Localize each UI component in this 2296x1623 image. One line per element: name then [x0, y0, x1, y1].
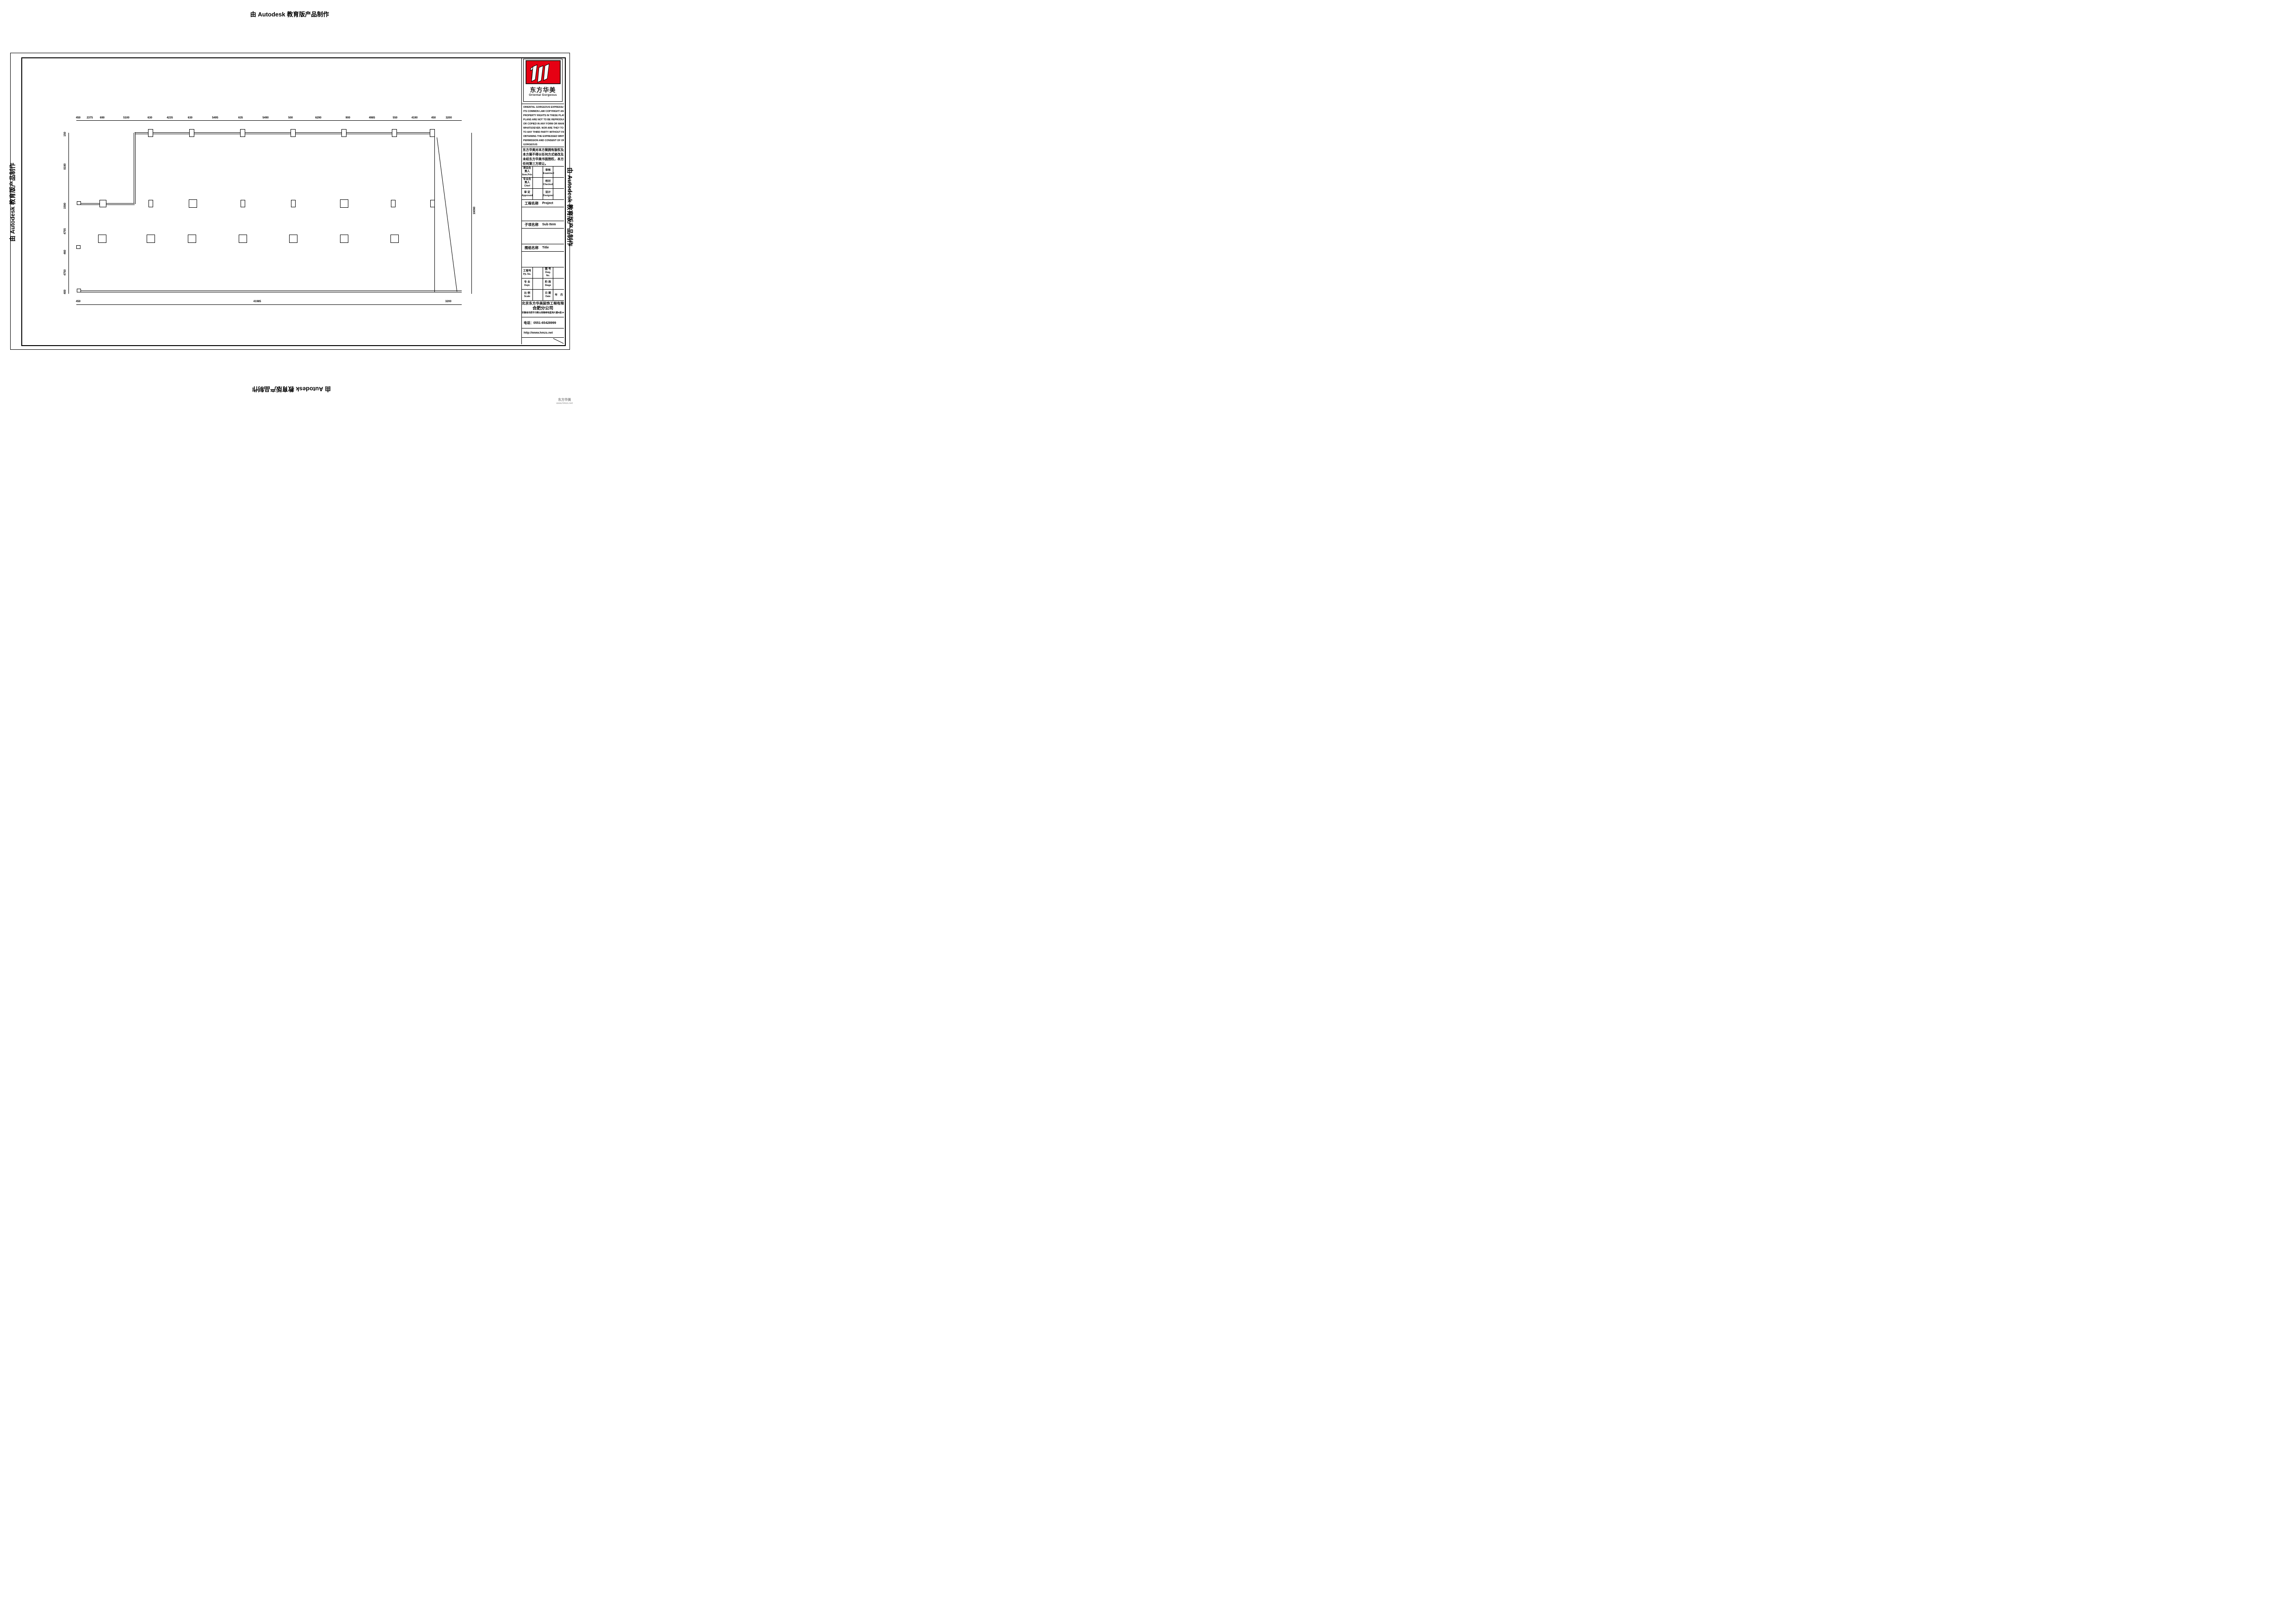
copyright-line: ORIENTAL GORGEOUS EXPRESSLY RESERVES [523, 105, 563, 110]
column-marker [240, 129, 245, 137]
sub-item-row: 子项名称 Sub Item [522, 221, 564, 229]
cell-value [533, 267, 543, 279]
copyright-chinese: 东方华美对本方案拥有版权及所有权。 本方案不得以任何方式修改及复制。 未经东方华… [522, 147, 564, 167]
dim-label: 2375 [87, 117, 93, 119]
fields-table: 工程号 Pjt. No. 图 号 Dwg. No. 专 业 Dept. 阶 段 … [522, 267, 564, 301]
cell-value [553, 178, 564, 189]
cell-value [533, 279, 543, 290]
drawing-title-row: 图纸名称 Title [522, 244, 564, 252]
dim-label: 150 [64, 132, 67, 136]
label: 项目负责人 [522, 167, 532, 173]
dim-label: 4985 [369, 117, 375, 119]
company-name: 北京东方华美装饰工程有限公司 [522, 301, 564, 306]
label: Approved [522, 194, 532, 198]
wall-top [135, 132, 435, 134]
copyright-line: WHATSOEVER. NOR ARE THEY TO BE ASSIGNED [523, 126, 563, 130]
label: 设计 [543, 191, 553, 194]
dim-label: 6290 [315, 117, 321, 119]
label: 审 定 [522, 191, 532, 194]
label: 比 例 [522, 292, 532, 295]
cell-value [553, 189, 564, 200]
dim-label: 400 [64, 290, 67, 294]
dim-label: 4235 [167, 117, 173, 119]
label: 专业负责人 [522, 178, 532, 185]
company-address: 安徽省合肥市马鞍山南路绿地蓝海大厦B座19楼 [522, 311, 564, 314]
project-name-row: 工程名称 Project [522, 200, 564, 207]
label: Scale [522, 295, 532, 298]
watermark-top: 由 Autodesk 教育版产品制作 [250, 10, 329, 19]
column-marker [291, 200, 296, 207]
logo-name-cn: 东方华美 [524, 87, 562, 93]
column-marker [390, 235, 399, 243]
dim-label: 3200 [445, 300, 451, 303]
cell-date: 日 期 Date [543, 290, 553, 301]
logo-section: 东方华美 Oriental Gorgeous [522, 57, 564, 104]
dim-line-left [68, 133, 69, 294]
label: 校对 [543, 180, 553, 183]
label: Pjt. No. [522, 273, 532, 276]
copyright-english: ORIENTAL GORGEOUS EXPRESSLY RESERVES ITS… [522, 104, 564, 147]
dim-label: 450 [76, 300, 80, 303]
label: 图纸名称 [525, 245, 538, 250]
column-marker [241, 200, 245, 207]
label: Examined [543, 172, 553, 175]
cell-value [553, 267, 564, 279]
column-marker [189, 129, 194, 137]
copyright-line: PLANS ARE NOT TO BE REPRODUCED CHANGED [523, 118, 563, 122]
cell-value [533, 290, 543, 301]
corner-wedge [522, 338, 564, 344]
dim-label: 450 [76, 117, 80, 119]
company-website: http://www.hmzs.net [522, 328, 564, 338]
dim-label: 900 [346, 117, 350, 119]
column-marker [239, 235, 247, 243]
label: Item.Prin [522, 173, 532, 177]
label: 日 期 [543, 292, 553, 295]
label: 审核 [543, 169, 553, 172]
cell-scale: 比 例 Scale [522, 290, 533, 301]
dim-label: 630 [148, 117, 152, 119]
column-marker [340, 235, 348, 243]
copyright-line: TO ANY THIRD PARTY WITHOUT FIRST [523, 130, 563, 135]
label: Checked [543, 183, 553, 186]
title-block: 东方华美 Oriental Gorgeous ORIENTAL GORGEOUS… [521, 57, 564, 344]
column-marker [188, 235, 196, 243]
label: 年 月 [553, 294, 564, 297]
company-section: 北京东方华美装饰工程有限公司 合肥分公司 安徽省合肥市马鞍山南路绿地蓝海大厦B座… [522, 301, 564, 317]
dim-label: 460 [64, 250, 67, 254]
cell-chief: 专业负责人 Chief [522, 178, 533, 189]
dim-label: 630 [188, 117, 192, 119]
company-branch: 合肥分公司 [522, 306, 564, 311]
corner-brand-stamp: 东方华美 www.hmzs.net [557, 398, 573, 405]
cell-pjt-no: 工程号 Pjt. No. [522, 267, 533, 279]
watermark-bottom: 由 Autodesk 教育版产品制作 [252, 385, 331, 394]
wall-bottom [77, 291, 462, 292]
label: Stage [543, 284, 553, 287]
label: 电话：0551-65428999 [524, 321, 556, 325]
wall-middle-hook [77, 201, 81, 205]
wedge-diagonal [553, 338, 564, 344]
column-marker [291, 129, 296, 137]
label: 专 业 [522, 281, 532, 284]
column-marker [392, 129, 397, 137]
copyright-line: PERMISSION AND CONSENT OF ORIENTAL [523, 139, 563, 143]
drawing-sheet: 由 Autodesk 教育版产品制作 由 Autodesk 教育版产品制作 由 … [0, 0, 574, 406]
cell-dwg-no: 图 号 Dwg. No. [543, 267, 553, 279]
label: Sub Item [542, 223, 556, 226]
cell-value [553, 279, 564, 290]
cell-stage: 阶 段 Stage [543, 279, 553, 290]
label: Date [543, 295, 553, 298]
dim-label: 690 [100, 117, 105, 119]
cell-examined: 审核 Examined [543, 167, 553, 178]
corner-brand-name: 东方华美 [557, 398, 573, 402]
cell-dept: 专 业 Dept. [522, 279, 533, 290]
dim-label-total-height: 19090 [473, 207, 476, 215]
label: Title [542, 246, 549, 249]
wall-right [434, 133, 435, 292]
dim-line-right [471, 133, 472, 294]
dim-label: 8190 [64, 163, 67, 169]
dim-line-top [76, 120, 462, 121]
copyright-line: 本方案不得以任何方式修改及复制。 [523, 153, 564, 157]
column-marker [341, 129, 347, 137]
column-marker [391, 200, 396, 207]
wall-left-return [134, 133, 136, 204]
dim-label: 41985 [254, 300, 261, 303]
dim-label: 4190 [411, 117, 417, 119]
dim-label: 635 [238, 117, 243, 119]
label: 图 号 [543, 268, 553, 271]
corner-brand-site: www.hmzs.net [557, 402, 573, 405]
column-marker [340, 199, 348, 208]
dim-label: 3200 [446, 117, 452, 119]
column-marker [147, 235, 155, 243]
copyright-line: ITS COMMON LAW COPYRIGHT AND OTHER [523, 110, 563, 114]
copyright-line: OR COPIED IN ANY FORM OR MANNER [523, 122, 563, 126]
copyright-line: GORGEOUS [523, 143, 563, 147]
copyright-line: 东方华美对本方案拥有版权及所有权。 [523, 148, 564, 153]
oriental-gorgeous-logo-icon [525, 60, 561, 84]
column-marker [430, 129, 435, 137]
column-marker [289, 235, 297, 243]
copyright-line: 未经东方华美书面授权，本方案不得向 [523, 157, 564, 162]
dim-label: 500 [288, 117, 293, 119]
dim-label: 1590 [64, 203, 67, 209]
cell-date-value: 年 月 [553, 290, 564, 301]
column-marker [189, 199, 197, 208]
label: Dept. [522, 284, 532, 287]
label: Designed [543, 194, 553, 198]
cell-value [533, 167, 543, 178]
column-marker [148, 129, 153, 137]
copyright-line: OBTAINING THE EXPRESSED WRITTEN [523, 135, 563, 139]
dim-label: 5100 [123, 117, 129, 119]
label: 阶 段 [543, 281, 553, 284]
dim-label: 4750 [64, 269, 67, 275]
dim-line-bottom [76, 304, 462, 305]
label: http://www.hmzs.net [524, 331, 553, 335]
wall-bottom-hook [77, 289, 81, 292]
column-marker [149, 200, 153, 207]
dim-label: 550 [393, 117, 397, 119]
column-marker [98, 235, 106, 243]
label: 子项名称 [525, 222, 538, 227]
drawing-title-value [522, 252, 564, 267]
cell-value [533, 189, 543, 200]
label: Dwg. No. [543, 271, 553, 278]
label: Project [542, 202, 553, 205]
dim-label: 450 [431, 117, 436, 119]
copyright-line: PROPERTY RIGHTS IN THESE PLANS. THESE [523, 114, 563, 118]
cell-checked: 校对 Checked [543, 178, 553, 189]
company-phone: 电话：0551-65428999 [522, 317, 564, 328]
project-name-value [522, 207, 564, 221]
column-marker [99, 200, 106, 207]
cell-value [553, 167, 564, 178]
cell-value [533, 178, 543, 189]
label: Chief [522, 185, 532, 188]
column-marker-small [76, 245, 80, 249]
cell-item-prin: 项目负责人 Item.Prin [522, 167, 533, 178]
sub-item-value [522, 229, 564, 244]
dim-label: 5495 [212, 117, 218, 119]
column-marker [430, 200, 435, 207]
cell-designed: 设计 Designed [543, 189, 553, 200]
dim-label: 4755 [64, 228, 67, 234]
logo-name-en: Oriental Gorgeous [524, 93, 562, 97]
label: 工程号 [522, 270, 532, 273]
cell-approved: 审 定 Approved [522, 189, 533, 200]
label: 工程名称 [525, 201, 538, 206]
copyright-line: 任何第三方转让。 [523, 162, 564, 167]
dim-label: 5490 [262, 117, 268, 119]
personnel-table: 项目负责人 Item.Prin 审核 Examined 专业负责人 Chief … [522, 167, 564, 200]
